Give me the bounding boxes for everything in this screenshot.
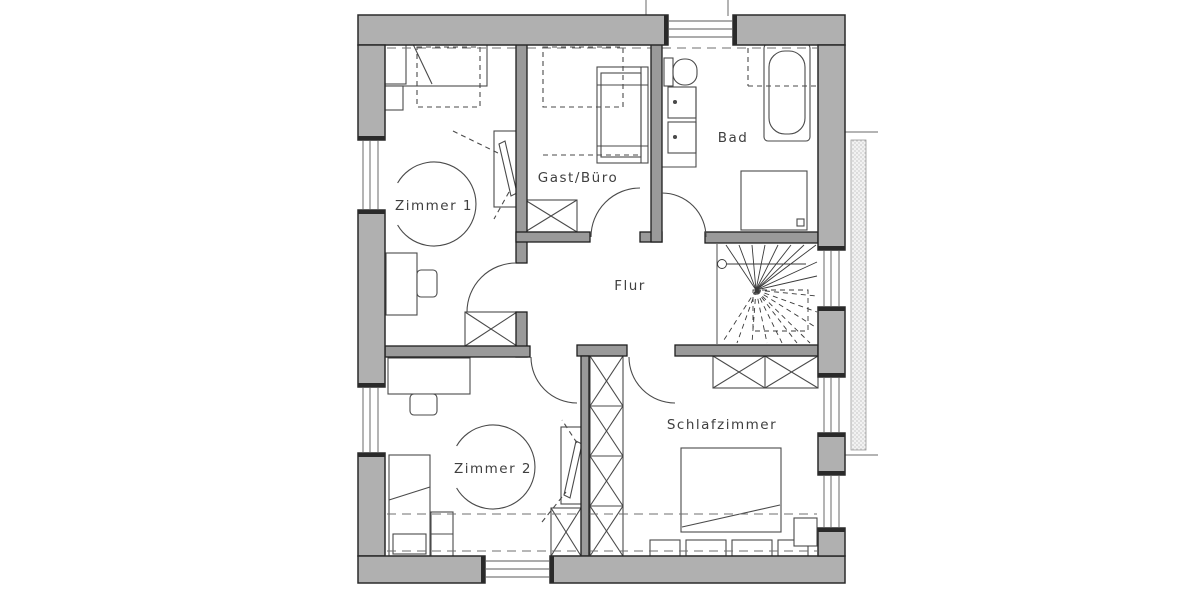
top-window-reveal-lines <box>646 0 728 16</box>
wall-bottom-left <box>358 556 485 583</box>
label-schlafzimmer: Schlafzimmer <box>667 417 777 433</box>
label-gast-buero: Gast/Büro <box>538 170 618 186</box>
wall-gastbuero-bad <box>651 42 662 242</box>
door-zimmer2 <box>531 357 577 403</box>
stair-treads-lower-dashed <box>722 290 817 343</box>
guest-bed-sofa <box>597 67 648 163</box>
wall-top-right <box>733 15 845 45</box>
wall-left-3 <box>358 453 385 556</box>
wall-flur-schlafzimmer <box>675 345 818 356</box>
chair <box>417 270 437 297</box>
double-washbasin <box>662 87 696 167</box>
wall-bad-flur <box>705 232 818 243</box>
wall-right-3 <box>818 433 845 475</box>
label-zimmer2: Zimmer 2 <box>454 461 532 477</box>
wall-zimmer2-schlafzimmer <box>581 356 589 556</box>
shower <box>741 171 807 230</box>
double-bed <box>650 448 817 556</box>
window-left-zimmer1 <box>363 140 378 210</box>
door-schlafzimmer <box>629 357 675 403</box>
wall-right-4 <box>818 528 845 556</box>
floor-plan-drawing: Zimmer 1 Gast/Büro Bad Flur Zimmer 2 Sch… <box>0 0 1200 600</box>
window-left-zimmer2 <box>363 387 378 453</box>
label-bad: Bad <box>718 130 749 146</box>
label-zimmer1: Zimmer 1 <box>395 198 473 214</box>
wall-right-1 <box>818 45 845 250</box>
desk-zimmer1 <box>386 253 437 315</box>
window-bottom-zimmer2 <box>485 561 550 577</box>
nightstand <box>794 518 817 546</box>
door-bad <box>662 193 706 237</box>
window-right-stair-lower <box>824 377 839 433</box>
window-right-schlafzimmer <box>824 475 839 528</box>
wall-bottom-right <box>550 556 845 583</box>
bed-zimmer1 <box>378 38 487 110</box>
wall-zimmer1-gastbuero <box>516 42 527 263</box>
floor-plan-canvas: Zimmer 1 Gast/Büro Bad Flur Zimmer 2 Sch… <box>0 0 1200 600</box>
wardrobe-x-zimmer2 <box>551 508 581 556</box>
chair <box>410 394 437 415</box>
wardrobe-x-column <box>590 356 623 556</box>
door-gast-buero <box>591 188 640 237</box>
window-right-stair-upper <box>824 250 839 307</box>
wall-top-left <box>358 15 668 45</box>
wall-left-2 <box>358 210 385 387</box>
wall-cabinet-open-door-zimmer2 <box>542 420 583 522</box>
winder-staircase <box>717 244 817 344</box>
roof-window-dashed-bad <box>748 48 816 86</box>
door-zimmer1 <box>467 263 516 312</box>
label-flur: Flur <box>614 278 646 294</box>
wall-zimmer1-zimmer2 <box>385 346 530 357</box>
furniture-layer <box>378 38 818 557</box>
wall-right-2 <box>818 307 845 377</box>
wall-gastbuero-flur <box>516 232 590 242</box>
stair-treads-upper <box>726 245 817 290</box>
wall-stub-south <box>577 345 627 356</box>
wardrobe-x-zimmer1 <box>465 312 517 346</box>
window-top-bad <box>668 21 733 37</box>
wardrobe-x-schlafzimmer-top <box>713 356 818 388</box>
bed-zimmer2 <box>389 455 453 557</box>
wall-left-1 <box>358 45 385 140</box>
wc-toilet <box>664 58 697 86</box>
stipple-band <box>851 140 866 450</box>
bathtub <box>764 44 810 141</box>
desk-zimmer2 <box>388 358 470 415</box>
wardrobe-x-gast-buero <box>525 200 577 232</box>
